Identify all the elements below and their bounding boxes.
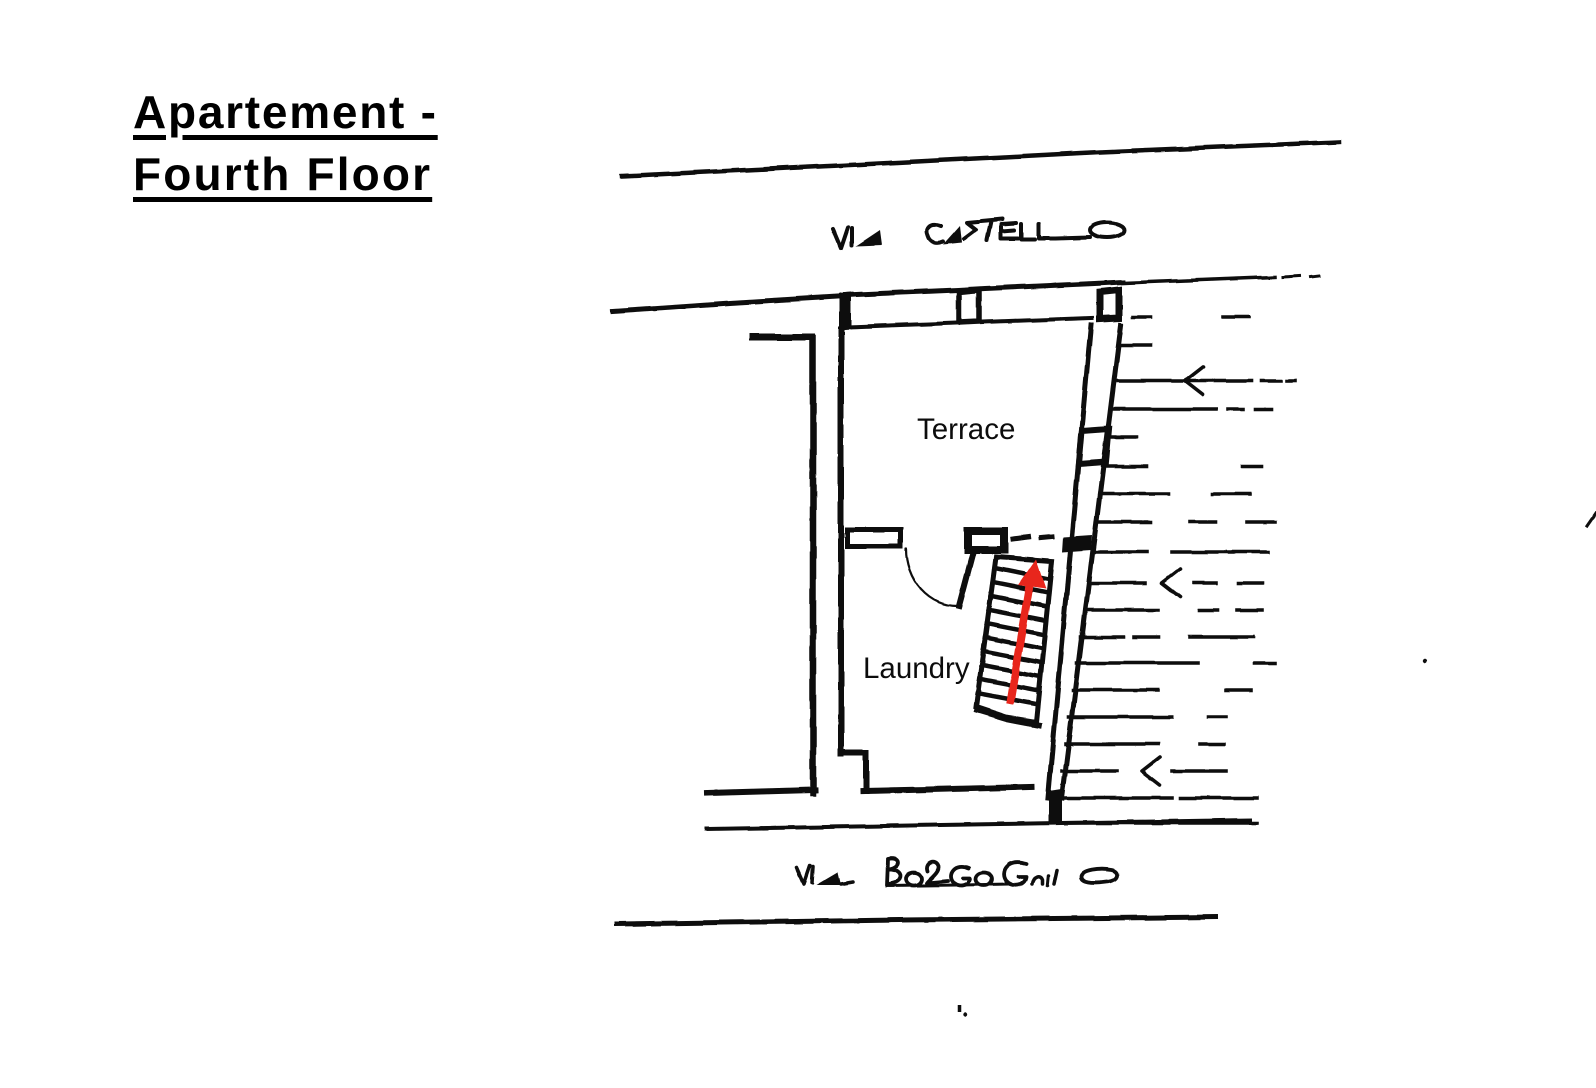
- svg-text:Laundry: Laundry: [863, 652, 970, 685]
- svg-text:Terrace: Terrace: [917, 413, 1015, 446]
